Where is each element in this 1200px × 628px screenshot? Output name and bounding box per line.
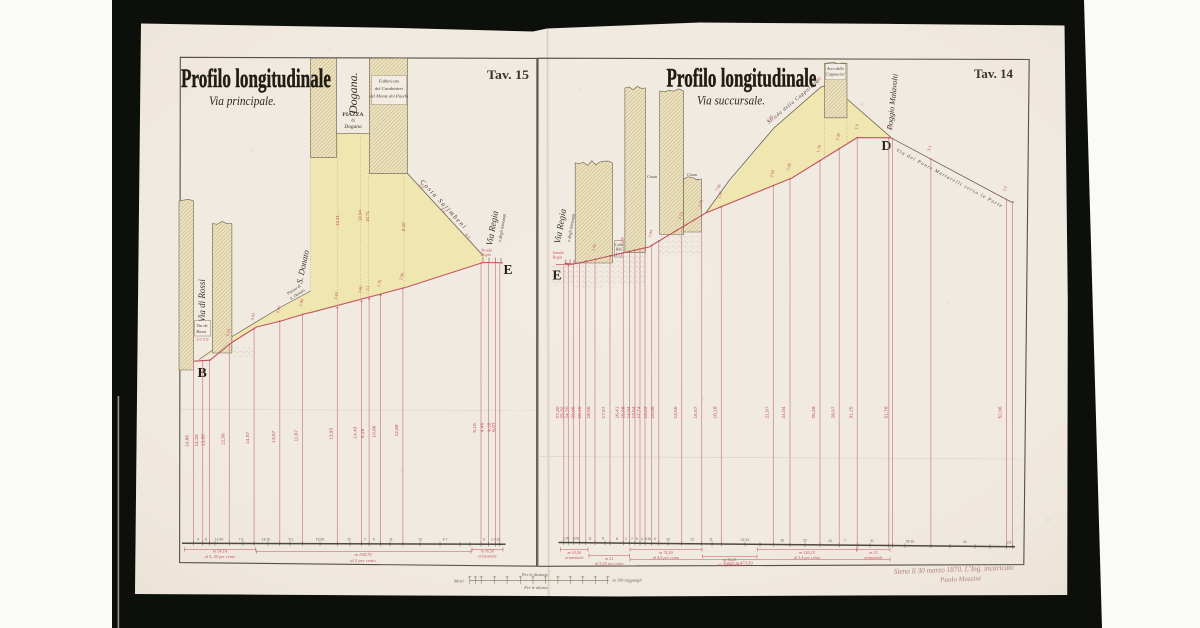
svg-text:11,67: 11,67 (294, 430, 300, 442)
svg-text:10.94: 10.94 (357, 209, 362, 221)
svg-text:3.6: 3.6 (1007, 540, 1012, 544)
svg-text:Arco della: Arco della (826, 66, 844, 71)
svg-text:m 100 ragguagli: m 100 ragguagli (613, 577, 643, 582)
svg-text:16,57: 16,57 (693, 406, 699, 418)
svg-text:17,97: 17,97 (601, 406, 607, 418)
svg-text:Tav. 14: Tav. 14 (974, 67, 1014, 81)
svg-text:Fabbricato: Fabbricato (378, 79, 400, 84)
svg-text:11: 11 (588, 537, 592, 541)
svg-text:19,16: 19,16 (577, 406, 583, 418)
svg-text:15,98: 15,98 (621, 406, 627, 418)
svg-text:11: 11 (389, 537, 393, 541)
svg-text:18,56: 18,56 (586, 406, 592, 418)
svg-text:al 2 per cento: al 2 per cento (350, 558, 376, 563)
svg-text:10: 10 (666, 537, 670, 541)
svg-text:8: 8 (616, 537, 618, 541)
svg-text:4,46: 4,46 (480, 423, 486, 433)
svg-text:9.1: 9.1 (289, 537, 294, 541)
svg-text:10: 10 (828, 539, 832, 543)
svg-text:7: 7 (844, 539, 846, 543)
svg-text:12,56: 12,56 (220, 433, 226, 445)
svg-text:8.16: 8.16 (645, 537, 652, 541)
svg-text:Tav. 15: Tav. 15 (487, 68, 529, 82)
svg-text:Costa: Costa (647, 174, 657, 179)
svg-text:7.6: 7.6 (239, 537, 244, 541)
svg-text:20,96: 20,96 (571, 406, 577, 418)
svg-text:28.16: 28.16 (906, 540, 915, 544)
svg-text:14,85: 14,85 (185, 435, 191, 447)
svg-text:1.0 2.6: 1.0 2.6 (196, 337, 209, 342)
svg-text:10,05: 10,05 (650, 406, 656, 418)
svg-text:12,74: 12,74 (636, 406, 642, 418)
svg-text:5: 5 (636, 537, 638, 541)
svg-text:14,43: 14,43 (353, 426, 359, 438)
svg-text:11: 11 (709, 538, 713, 542)
svg-text:14,30: 14,30 (194, 434, 200, 446)
svg-text:1: 1 (625, 537, 627, 541)
svg-text:Billi: Billi (616, 248, 623, 252)
svg-text:31,25: 31,25 (848, 406, 854, 418)
svg-text:Metri: Metri (453, 578, 465, 583)
svg-text:Dogana: Dogana (343, 124, 362, 130)
svg-text:Regia: Regia (552, 255, 563, 260)
svg-text:Cappuccini: Cappuccini (826, 72, 844, 77)
svg-text:22: 22 (803, 539, 807, 543)
svg-text:13,80: 13,80 (201, 434, 207, 446)
svg-text:Via succursale.: Via succursale. (697, 93, 765, 108)
svg-text:22.10: 22.10 (741, 538, 750, 542)
svg-text:5,16: 5,16 (472, 423, 478, 433)
svg-text:4.7: 4.7 (443, 537, 448, 541)
svg-text:Via principale.: Via principale. (209, 93, 276, 108)
svg-text:13,93: 13,93 (328, 427, 334, 439)
svg-text:Dogana.: Dogana. (346, 72, 360, 115)
svg-text:13,02: 13,02 (643, 406, 649, 418)
svg-text:8.10: 8.10 (401, 222, 406, 231)
svg-text:13,56: 13,56 (673, 406, 679, 418)
svg-text:Rossi: Rossi (195, 329, 207, 334)
svg-text:7: 7 (364, 537, 366, 541)
svg-text:del Monte dei Paschi: del Monte dei Paschi (370, 94, 410, 99)
svg-text:Per le altezze: Per le altezze (523, 585, 548, 590)
svg-text:E: E (504, 262, 513, 277)
svg-text:12: 12 (690, 538, 694, 542)
svg-text:13.41: 13.41 (335, 214, 340, 226)
svg-text:14,57: 14,57 (245, 432, 251, 444)
svg-text:orizzontale: orizzontale (478, 554, 497, 559)
svg-text:10.71: 10.71 (365, 210, 370, 222)
svg-text:4: 4 (197, 537, 199, 541)
svg-text:24,04: 24,04 (781, 406, 787, 418)
svg-text:6: 6 (205, 537, 207, 541)
svg-text:Via de: Via de (196, 323, 208, 328)
svg-text:18.10: 18.10 (262, 537, 271, 541)
svg-text:13: 13 (418, 537, 422, 541)
svg-text:28,97: 28,97 (830, 406, 836, 418)
svg-text:orizzontale: orizzontale (565, 555, 584, 560)
svg-text:15.60: 15.60 (316, 537, 325, 541)
svg-text:31: 31 (870, 539, 874, 543)
svg-text:12: 12 (347, 537, 351, 541)
svg-text:51,78: 51,78 (884, 406, 890, 418)
svg-text:18,18: 18,18 (712, 406, 718, 418)
svg-text:6: 6 (654, 537, 656, 541)
svg-text:Profilo longitudinale: Profilo longitudinale (181, 64, 331, 93)
svg-text:Profilo longitudinale: Profilo longitudinale (667, 64, 817, 93)
svg-text:13,67: 13,67 (271, 430, 277, 442)
svg-text:9: 9 (602, 537, 604, 541)
svg-text:del Carabinieri: del Carabinieri (375, 86, 404, 91)
svg-text:6: 6 (483, 537, 485, 541)
svg-text:9: 9 (373, 537, 375, 541)
svg-text:Paolo Mazzini: Paolo Mazzini (939, 574, 981, 583)
svg-text:D: D (882, 138, 892, 153)
svg-text:10,66: 10,66 (372, 425, 378, 437)
svg-text:6,07: 6,07 (491, 422, 497, 432)
svg-text:16,41: 16,41 (614, 406, 620, 418)
svg-text:3.16: 3.16 (494, 537, 501, 541)
svg-text:26,48: 26,48 (811, 406, 817, 418)
svg-text:16: 16 (780, 538, 784, 542)
svg-text:7: 7 (631, 537, 633, 541)
svg-text:21,97: 21,97 (764, 406, 770, 418)
svg-text:52,06: 52,06 (998, 406, 1004, 418)
svg-text:4: 4 (641, 537, 643, 541)
svg-text:9,18: 9,18 (360, 429, 366, 439)
svg-text:12,89: 12,89 (394, 424, 400, 436)
svg-text:12.40: 12.40 (215, 537, 224, 541)
svg-text:24,70: 24,70 (564, 406, 570, 418)
svg-text:E: E (553, 268, 562, 283)
svg-text:41: 41 (963, 540, 967, 544)
svg-text:Via di Rossi: Via di Rossi (197, 279, 207, 322)
svg-text:Regia: Regia (480, 252, 491, 257)
svg-text:8.00: 8.00 (573, 537, 580, 541)
svg-text:1.05: 1.05 (563, 536, 570, 540)
svg-text:B: B (198, 366, 207, 381)
svg-text:Per le distanze: Per le distanze (521, 572, 548, 577)
